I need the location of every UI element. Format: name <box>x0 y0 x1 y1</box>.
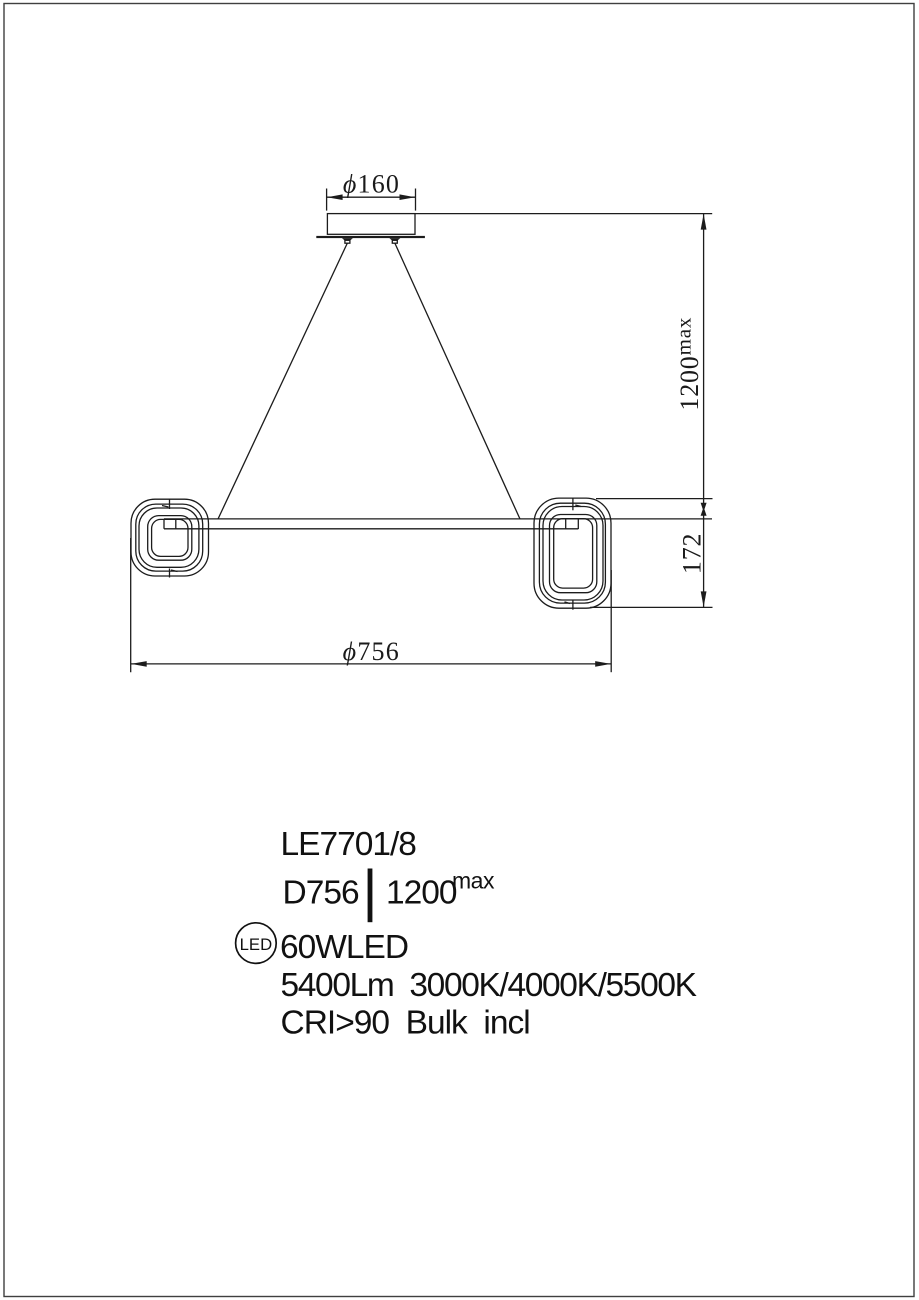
svg-text:5400Lm 3000K/4000K/5500K: 5400Lm 3000K/4000K/5500K <box>281 967 697 1004</box>
svg-text:LED: LED <box>240 935 272 954</box>
svg-text:1200: 1200 <box>386 874 457 911</box>
svg-text:max: max <box>452 867 495 893</box>
svg-text:D756: D756 <box>283 874 359 911</box>
svg-text:60WLED: 60WLED <box>280 929 408 966</box>
svg-text:172: 172 <box>677 533 706 574</box>
svg-text:ϕ160: ϕ160 <box>343 170 400 199</box>
svg-text:LE7701/8: LE7701/8 <box>281 826 417 863</box>
svg-text:ϕ756: ϕ756 <box>343 637 400 666</box>
svg-text:CRI>90 Bulk incl: CRI>90 Bulk incl <box>281 1005 530 1042</box>
